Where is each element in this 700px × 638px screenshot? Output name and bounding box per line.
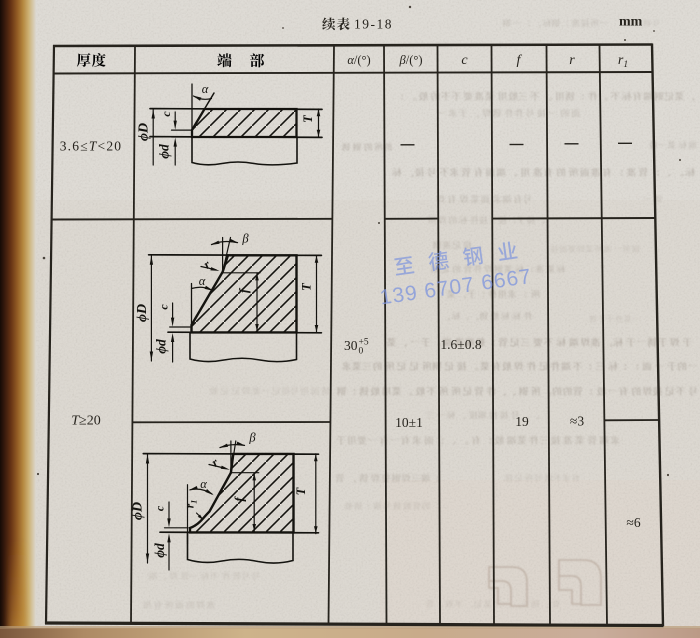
svg-text:≈3: ≈3 [570,414,584,429]
svg-text:c: c [157,304,171,310]
svg-text:β: β [248,431,256,445]
svg-text:c: c [153,505,167,511]
svg-text:α: α [202,82,209,96]
svg-text:19-18: 19-18 [354,17,393,32]
svg-text:ϕD: ϕD [135,304,150,322]
svg-text:α: α [199,274,206,288]
svg-text:ϕd: ϕd [154,339,169,354]
svg-text:T≥20: T≥20 [71,414,100,429]
svg-text:≈6: ≈6 [626,515,640,530]
svg-text:β/(°): β/(°) [398,53,422,67]
svg-text:c: c [461,53,468,68]
svg-text:ϕd: ϕd [157,144,172,159]
svg-text:ϕD: ϕD [131,502,146,520]
svg-text:α: α [200,477,207,491]
svg-text:0: 0 [359,347,364,357]
svg-text:mm: mm [619,15,643,30]
svg-text:c: c [159,111,173,117]
svg-text:ϕd: ϕd [152,543,167,558]
svg-text:30: 30 [344,338,358,353]
svg-text:ϕD: ϕD [137,123,152,141]
svg-text:β: β [241,232,249,246]
svg-text:1.6±0.8: 1.6±0.8 [440,337,481,352]
svg-text:10±1: 10±1 [395,415,423,430]
svg-text:19: 19 [515,414,529,429]
svg-text:α/(°): α/(°) [347,53,370,67]
svg-text:3.6≤T<20: 3.6≤T<20 [60,139,123,154]
svg-text:r: r [569,53,575,68]
